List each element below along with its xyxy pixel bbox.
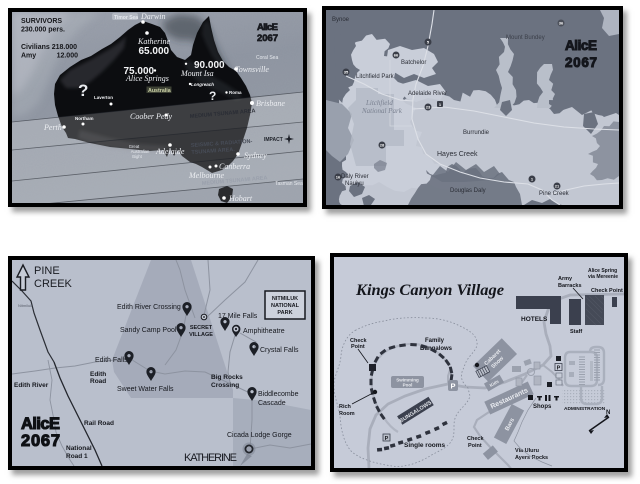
svg-text:AlicE: AlicE <box>21 415 60 433</box>
svg-text:Tasman Sea: Tasman Sea <box>275 181 303 187</box>
svg-text:Army: Army <box>558 276 573 282</box>
svg-text:Room: Room <box>339 411 355 417</box>
svg-text:Timor Sea: Timor Sea <box>114 15 138 21</box>
svg-text:Burrundie: Burrundie <box>463 130 490 136</box>
svg-text:HOTELS: HOTELS <box>521 316 548 323</box>
svg-text:Staff: Staff <box>570 329 582 335</box>
svg-text:36: 36 <box>559 21 564 26</box>
svg-text:VILLAGE: VILLAGE <box>189 332 213 338</box>
svg-text:75.000: 75.000 <box>124 66 155 77</box>
svg-text:Road: Road <box>90 378 106 385</box>
svg-text:Daly River: Daly River <box>341 174 369 180</box>
svg-text:Edith: Edith <box>90 371 106 378</box>
svg-text:2067: 2067 <box>565 55 597 70</box>
svg-text:2067: 2067 <box>21 432 60 450</box>
svg-text:Edith Falls: Edith Falls <box>95 357 128 364</box>
svg-text:Edith River: Edith River <box>14 382 49 389</box>
svg-text:ADMINISTRATION: ADMINISTRATION <box>564 406 606 412</box>
svg-text:Longreach: Longreach <box>191 82 214 87</box>
svg-text:Adelaide: Adelaide <box>155 147 185 156</box>
svg-text:Cascade: Cascade <box>258 400 286 407</box>
svg-text:Katherine: Katherine <box>137 37 170 46</box>
svg-text:Darwin: Darwin <box>140 12 165 21</box>
svg-text:Brisbane: Brisbane <box>256 99 285 108</box>
svg-text:Barracks: Barracks <box>558 283 582 289</box>
svg-text:?: ? <box>209 89 216 103</box>
svg-text:Kings Canyon Village: Kings Canyon Village <box>355 282 504 299</box>
svg-text:CREEK: CREEK <box>34 278 73 290</box>
svg-text:Nauiyu: Nauiyu <box>345 181 364 187</box>
svg-text:21: 21 <box>555 184 560 189</box>
svg-text:Perth: Perth <box>43 123 62 132</box>
svg-text:66: 66 <box>394 53 399 58</box>
svg-text:Hobart: Hobart <box>228 194 253 203</box>
svg-text:National Park: National Park <box>361 107 403 115</box>
svg-text:Single rooms: Single rooms <box>404 442 446 449</box>
svg-text:P: P <box>385 436 389 442</box>
svg-text:28: 28 <box>380 143 385 148</box>
svg-text:KATHERINE: KATHERINE <box>184 452 237 464</box>
svg-text:Canberra: Canberra <box>219 162 250 171</box>
svg-text:Pine Creek: Pine Creek <box>539 191 570 197</box>
svg-text:Amy: Amy <box>21 53 36 60</box>
svg-text:Townsville: Townsville <box>235 65 269 74</box>
svg-text:Batchelor: Batchelor <box>401 60 426 66</box>
svg-text:Northam: Northam <box>75 116 94 121</box>
svg-text:Douglas Daly: Douglas Daly <box>450 188 486 194</box>
svg-text:Coober Pedy: Coober Pedy <box>130 112 172 121</box>
svg-text:PINE: PINE <box>34 265 60 277</box>
svg-text:Pool: Pool <box>403 383 413 388</box>
svg-text:65.000: 65.000 <box>139 46 170 57</box>
svg-text:Rail Road: Rail Road <box>84 420 114 427</box>
svg-text:2067: 2067 <box>257 33 278 44</box>
svg-text:Big Rocks: Big Rocks <box>211 374 243 381</box>
svg-text:AlicE: AlicE <box>565 38 597 53</box>
svg-text:23: 23 <box>426 105 431 110</box>
svg-text:Rich: Rich <box>339 404 352 410</box>
svg-text:Laverton: Laverton <box>94 95 113 100</box>
svg-text:P: P <box>557 366 561 372</box>
svg-text:12.000: 12.000 <box>57 53 79 60</box>
svg-text:Ayers Rocks: Ayers Rocks <box>515 455 548 461</box>
svg-text:Check Point: Check Point <box>591 288 623 294</box>
svg-text:Edith River Crossing: Edith River Crossing <box>117 304 181 311</box>
svg-text:Nitmiluk: Nitmiluk <box>18 303 32 308</box>
svg-text:Sandy Camp Pool: Sandy Camp Pool <box>120 327 177 334</box>
svg-text:Bight: Bight <box>132 154 142 159</box>
svg-text:Check: Check <box>467 436 484 442</box>
svg-text:Via Uluru: Via Uluru <box>515 448 539 454</box>
svg-text:IMPACT: IMPACT <box>264 137 283 143</box>
svg-text:16: 16 <box>336 175 341 180</box>
svg-text:Adelaide River: Adelaide River <box>408 91 447 97</box>
svg-text:Hayes Creek: Hayes Creek <box>437 151 478 158</box>
svg-text:?: ? <box>78 81 88 100</box>
svg-text:Cicada Lodge Gorge: Cicada Lodge Gorge <box>227 432 292 439</box>
svg-text:Crystal Falls: Crystal Falls <box>260 347 299 354</box>
svg-text:NATIONAL: NATIONAL <box>271 303 300 309</box>
svg-text:35: 35 <box>344 70 349 75</box>
svg-text:Litchfield: Litchfield <box>365 99 393 107</box>
svg-text:Coral Sea: Coral Sea <box>256 55 278 61</box>
svg-text:Civilians 218.000: Civilians 218.000 <box>21 44 77 51</box>
svg-text:230.000 pers.: 230.000 pers. <box>21 27 65 34</box>
svg-text:Point: Point <box>468 443 482 449</box>
svg-text:PARK: PARK <box>277 310 292 316</box>
svg-text:Sydney: Sydney <box>244 151 267 160</box>
svg-text:90.000: 90.000 <box>194 60 225 71</box>
svg-text:Bynoe: Bynoe <box>332 17 350 23</box>
svg-text:P: P <box>450 382 455 391</box>
svg-text:SECRET: SECRET <box>190 325 213 331</box>
svg-text:Litchfield Park: Litchfield Park <box>356 74 395 80</box>
svg-text:via Mereenie: via Mereenie <box>588 274 618 280</box>
svg-text:Road 1: Road 1 <box>66 453 88 460</box>
svg-text:Shops: Shops <box>533 404 552 410</box>
svg-text:AlicE: AlicE <box>257 22 278 33</box>
svg-text:Mount Bundey: Mount Bundey <box>506 35 545 41</box>
svg-text:National: National <box>66 445 92 452</box>
svg-text:Australia: Australia <box>148 88 171 94</box>
svg-text:N: N <box>606 410 610 416</box>
svg-text:SURVIVORS: SURVIVORS <box>21 18 62 25</box>
svg-text:Sweet Water Falls: Sweet Water Falls <box>117 386 174 393</box>
svg-text:Amphitheatre: Amphitheatre <box>243 328 285 335</box>
svg-text:Crossing: Crossing <box>211 382 239 389</box>
svg-text:Family: Family <box>425 338 445 344</box>
svg-text:NITMILUK: NITMILUK <box>272 296 298 302</box>
svg-text:Biddlecombe: Biddlecombe <box>258 391 299 398</box>
svg-text:Roma: Roma <box>229 90 242 95</box>
